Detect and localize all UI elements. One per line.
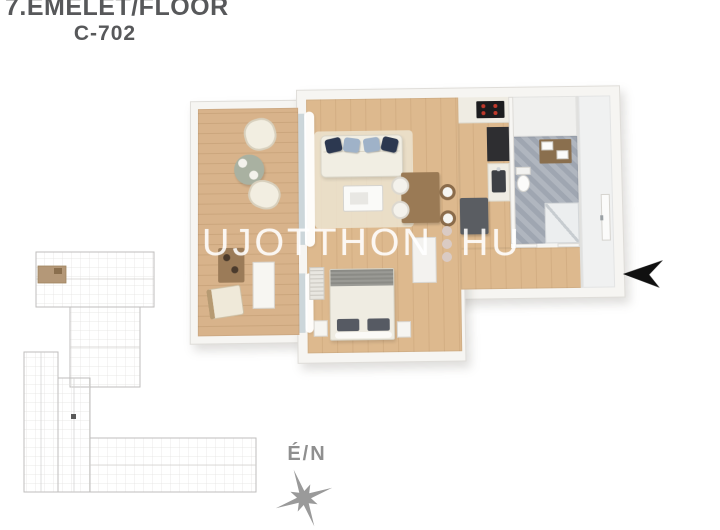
fridge-tall-unit bbox=[487, 127, 510, 161]
bed-pillow bbox=[337, 319, 359, 332]
cooktop bbox=[476, 101, 504, 118]
building-siteplan-minimap bbox=[8, 240, 258, 510]
floor-title: 7.EMELET/FLOOR bbox=[5, 0, 205, 21]
coffee-table bbox=[343, 185, 384, 212]
bed-bolster bbox=[335, 332, 392, 339]
shower bbox=[544, 202, 579, 243]
washbasin bbox=[541, 141, 553, 150]
dot-icon bbox=[442, 252, 452, 262]
dot-icon bbox=[442, 239, 452, 249]
kitchen-sink bbox=[491, 170, 505, 192]
double-bed bbox=[329, 268, 395, 341]
watermark-name: UJOTTHON bbox=[202, 222, 433, 265]
bed-blanket bbox=[330, 269, 393, 286]
entry-floor bbox=[576, 95, 615, 287]
watermark-dots-icon bbox=[442, 226, 452, 262]
washbasin bbox=[556, 150, 568, 159]
toilet-tank bbox=[516, 167, 531, 175]
nightstand bbox=[397, 321, 411, 338]
burner-icon bbox=[493, 111, 497, 115]
toilet bbox=[517, 175, 530, 192]
bed-pillow bbox=[367, 318, 389, 331]
stool-top bbox=[442, 187, 452, 197]
coffee-table-tray bbox=[350, 192, 368, 204]
burner-icon bbox=[481, 111, 485, 115]
door-handle-icon bbox=[600, 215, 603, 220]
minimap-core-marker bbox=[71, 414, 76, 419]
dot-icon bbox=[442, 226, 452, 236]
floorplan-page: { "header": { "floor_label": "7.EMELET/F… bbox=[0, 0, 720, 510]
minimap-unit-highlight-detail bbox=[54, 268, 62, 274]
watermark-tld: HU bbox=[461, 222, 522, 265]
compass-rose-icon bbox=[274, 466, 334, 530]
compass-label: É/N bbox=[252, 443, 362, 466]
unit-number: C-702 bbox=[5, 22, 205, 46]
plate-icon bbox=[238, 159, 247, 168]
bathroom-upper-zone bbox=[512, 96, 577, 137]
entrance-arrow-icon bbox=[623, 260, 664, 291]
pillow-blue bbox=[363, 137, 381, 153]
bathroom-wall-bottom-right bbox=[557, 243, 579, 247]
sofa bbox=[320, 134, 403, 177]
bathroom-vanity bbox=[539, 139, 572, 164]
burner-icon bbox=[481, 104, 485, 108]
bedroom-dresser bbox=[309, 267, 324, 300]
nightstand bbox=[314, 320, 328, 337]
watermark: UJOTTHON HU bbox=[202, 222, 522, 265]
plate-icon bbox=[249, 171, 258, 180]
bar-stool bbox=[439, 184, 455, 200]
faucet-icon bbox=[496, 167, 500, 171]
pillow-blue bbox=[343, 137, 361, 153]
plan-title-block: 7.EMELET/FLOOR C-702 bbox=[5, 0, 205, 46]
burner-icon bbox=[493, 104, 497, 108]
entrance-door bbox=[601, 194, 611, 241]
